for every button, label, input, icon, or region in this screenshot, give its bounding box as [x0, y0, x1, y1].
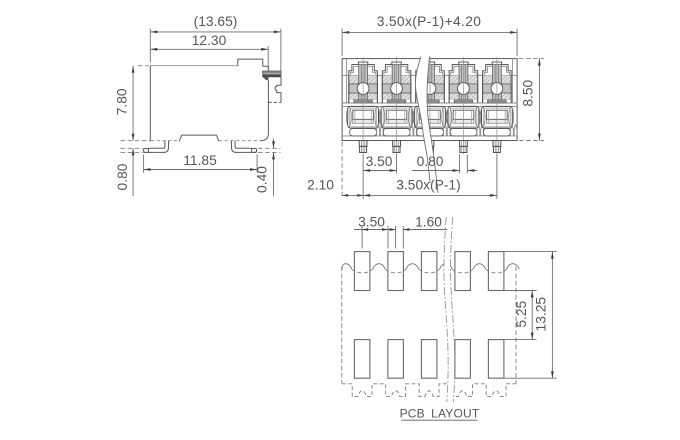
svg-text:3.50: 3.50	[358, 215, 385, 230]
svg-text:7.80: 7.80	[115, 88, 130, 115]
svg-text:0.40: 0.40	[255, 166, 270, 193]
svg-text:5.25: 5.25	[514, 300, 529, 327]
svg-text:0.80: 0.80	[417, 154, 444, 169]
svg-text:8.50: 8.50	[521, 79, 536, 106]
svg-text:3.50x(P-1)+4.20: 3.50x(P-1)+4.20	[377, 14, 482, 29]
svg-text:1.60: 1.60	[415, 215, 442, 230]
svg-text:12.30: 12.30	[192, 33, 227, 48]
svg-text:(13.65): (13.65)	[194, 14, 238, 29]
svg-text:PCB LAYOUT: PCB LAYOUT	[400, 406, 480, 420]
svg-text:3.50x(P-1): 3.50x(P-1)	[396, 178, 460, 193]
svg-text:13.25: 13.25	[533, 297, 548, 332]
svg-text:3.50: 3.50	[366, 154, 393, 169]
svg-text:11.85: 11.85	[183, 153, 217, 168]
svg-text:0.80: 0.80	[115, 163, 130, 190]
svg-text:2.10: 2.10	[307, 178, 334, 193]
